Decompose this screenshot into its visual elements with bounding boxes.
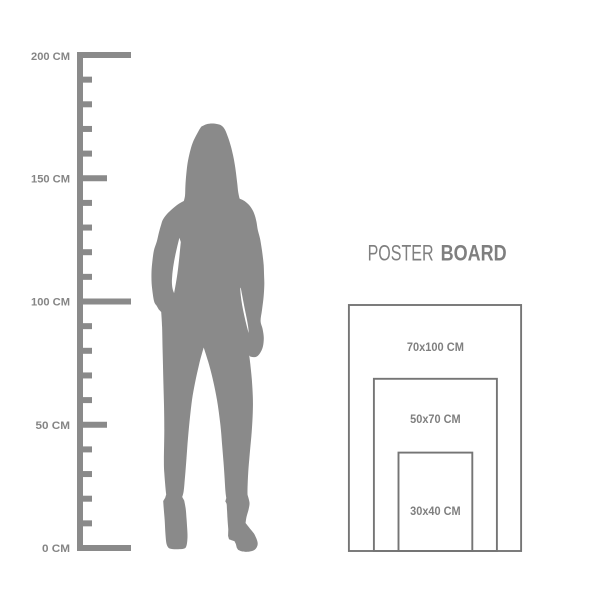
- svg-text:150 CM: 150 CM: [31, 173, 70, 185]
- svg-text:30x40 CM: 30x40 CM: [410, 504, 461, 518]
- svg-text:50x70 CM: 50x70 CM: [410, 412, 461, 426]
- svg-text:POSTER: POSTER: [368, 240, 434, 265]
- svg-text:BOARD: BOARD: [441, 240, 507, 265]
- svg-text:200 CM: 200 CM: [31, 51, 70, 63]
- svg-text:0 CM: 0 CM: [42, 543, 70, 555]
- svg-text:50 CM: 50 CM: [36, 420, 71, 432]
- svg-text:100 CM: 100 CM: [31, 297, 70, 309]
- svg-text:70x100 CM: 70x100 CM: [407, 340, 464, 354]
